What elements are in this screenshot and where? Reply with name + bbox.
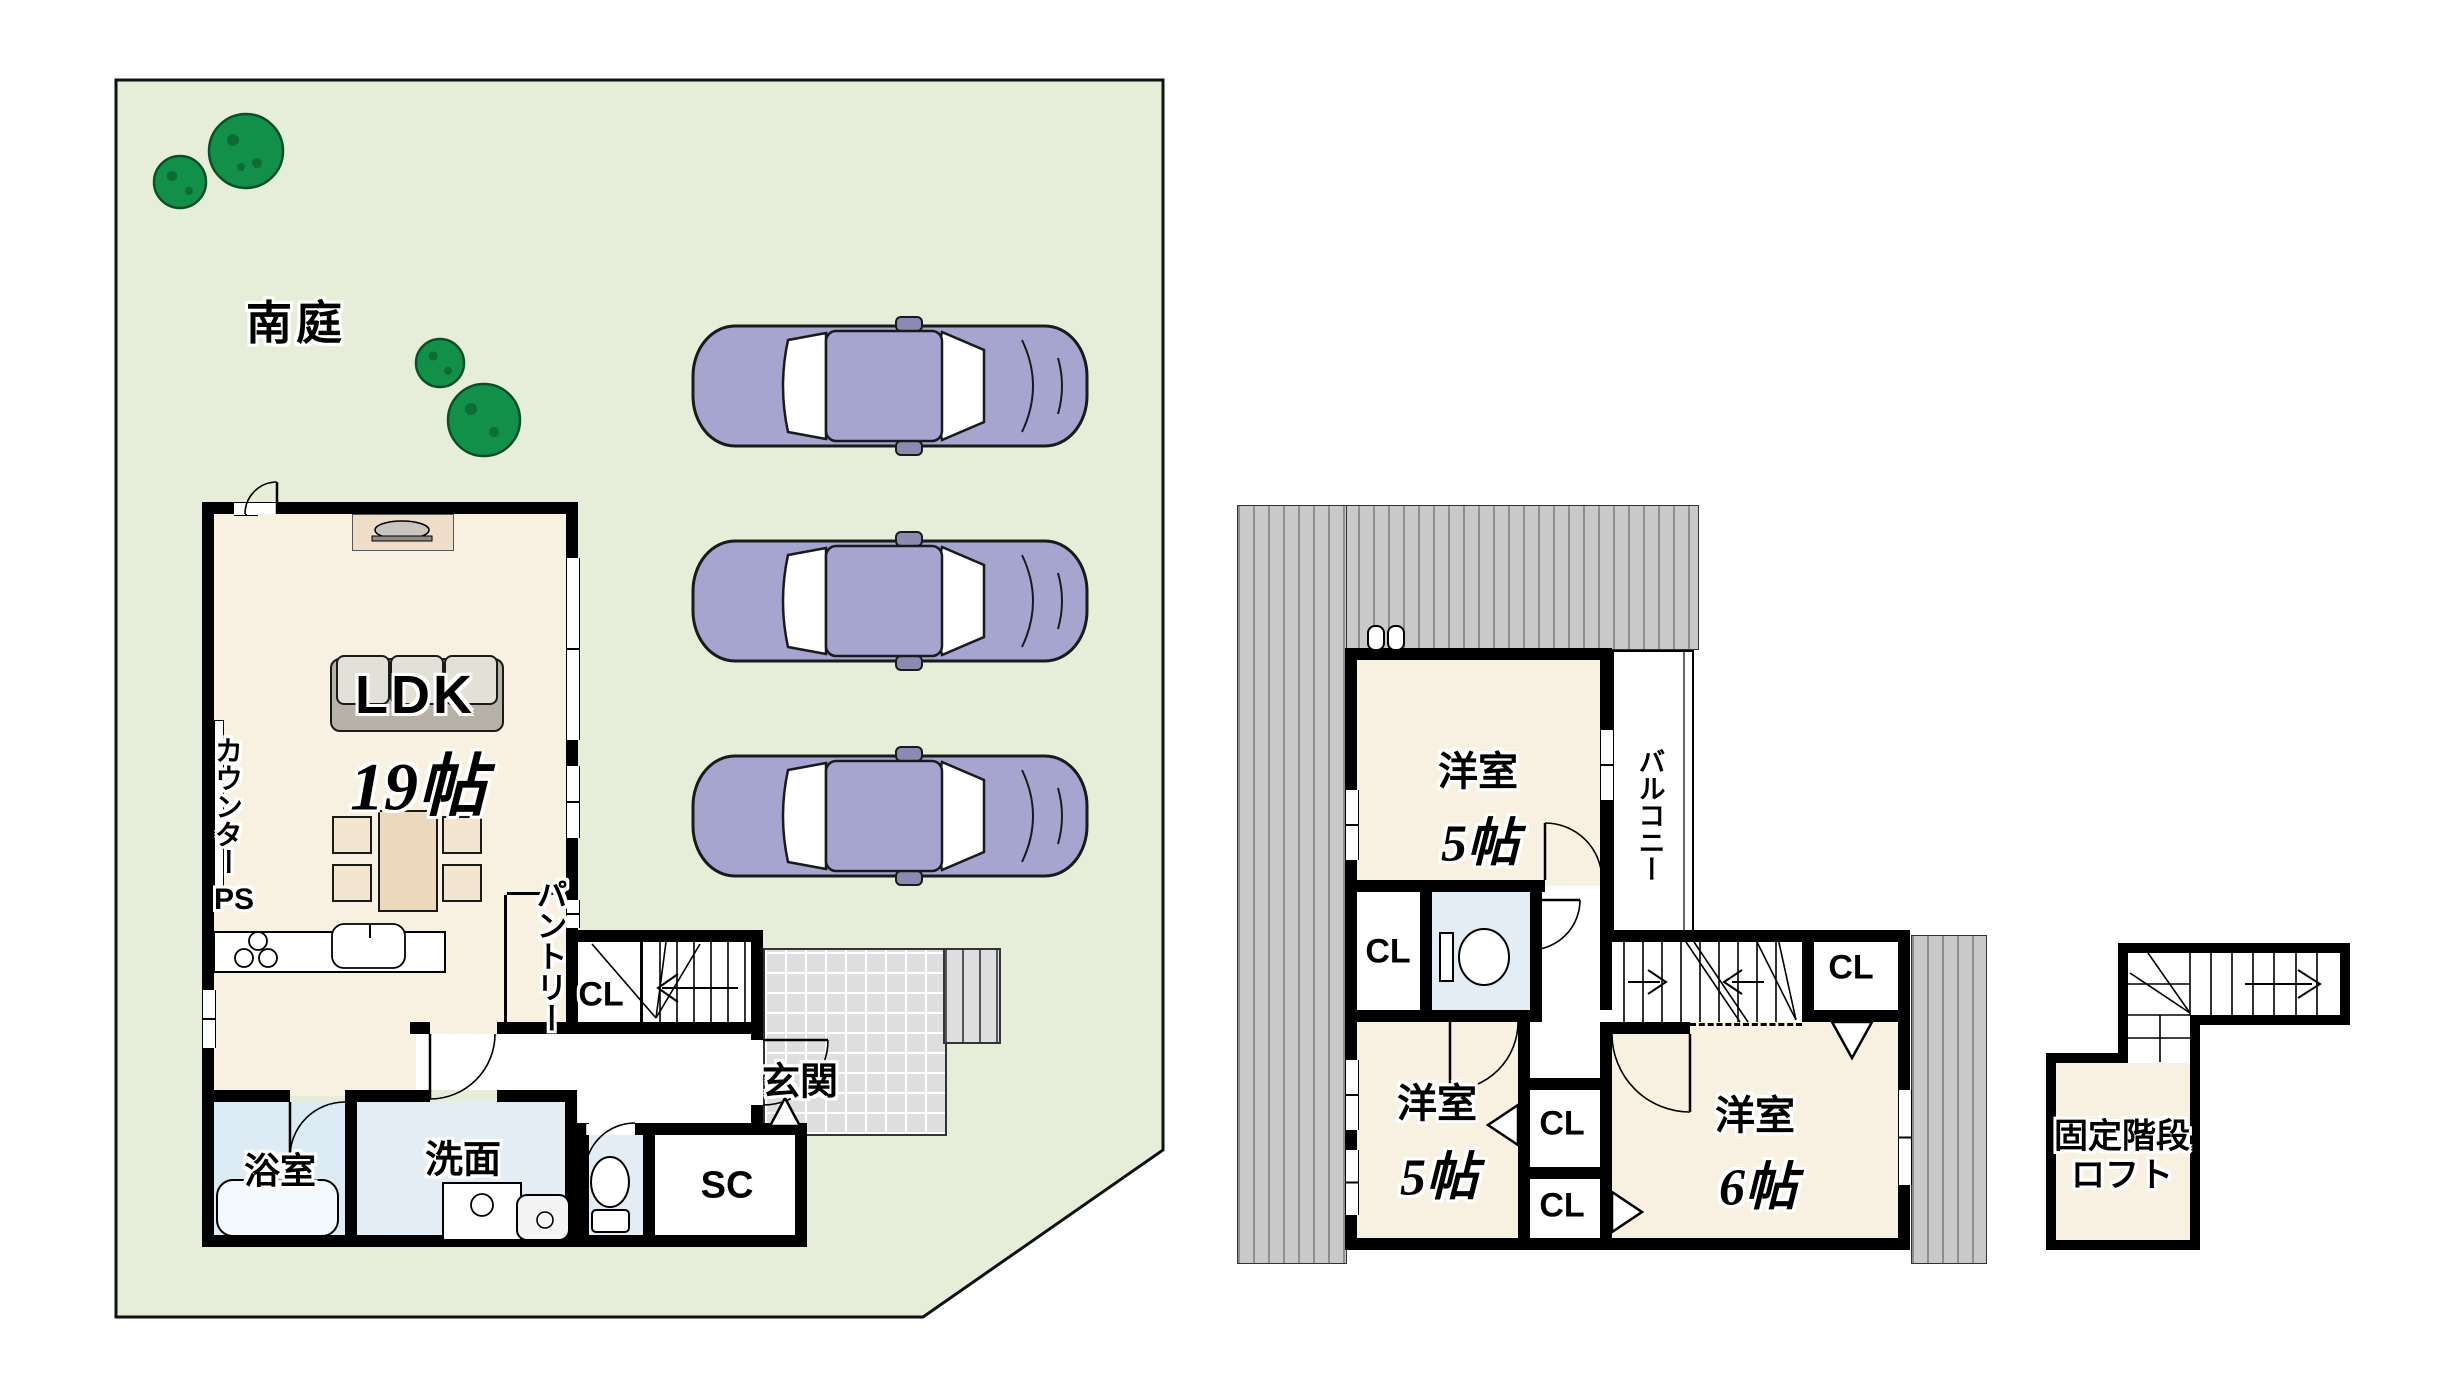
- tree-icon: [448, 384, 520, 456]
- entrance-label: 玄関: [762, 1051, 838, 1106]
- closet-1f-label: CL: [578, 976, 623, 1015]
- wall: [1602, 880, 1612, 892]
- wall: [2200, 1015, 2350, 1025]
- wall: [202, 1090, 290, 1102]
- shoe-closet-label: SC: [701, 1165, 754, 1208]
- wall: [345, 1090, 430, 1102]
- loft-stair-floor2: [2128, 1015, 2190, 1062]
- window: [1345, 1150, 1359, 1215]
- wall: [1420, 892, 1432, 1010]
- kitchen-floor: [208, 1034, 416, 1096]
- car-icon: [693, 532, 1087, 670]
- room2f-left-size: 5帖: [1400, 1135, 1478, 1210]
- bath-label: 浴室: [244, 1142, 316, 1194]
- closet-low-label: CL: [1539, 1187, 1584, 1226]
- door-gap: [245, 503, 277, 514]
- ps-label: PS: [214, 883, 254, 917]
- wall: [410, 1022, 430, 1034]
- chair: [332, 864, 372, 902]
- wall: [1802, 942, 1814, 1010]
- tree-icon: [209, 114, 283, 188]
- wall: [1600, 1022, 1612, 1238]
- toilet2f-floor: [1432, 892, 1530, 1010]
- wall: [2190, 1015, 2200, 1250]
- tree-icon: [154, 156, 206, 208]
- wall: [577, 1123, 589, 1235]
- roof-eave-left: [1237, 505, 1347, 1264]
- wall: [1345, 648, 1612, 660]
- wall: [1612, 930, 1910, 942]
- room2f-right-label: 洋室: [1715, 1083, 1795, 1141]
- window: [1345, 1060, 1359, 1130]
- landing-dashed-line: [1690, 1023, 1802, 1026]
- wall: [643, 1123, 655, 1235]
- floor-plan-canvas: 南庭 LDK 19帖 カウンター PS パントリー CL 玄関 SC 浴室 洗面…: [0, 0, 2456, 1380]
- window: [566, 766, 580, 838]
- entrance-tile: [763, 948, 947, 1136]
- garden-label: 南庭: [246, 287, 346, 353]
- room2f-left-label: 洋室: [1397, 1071, 1477, 1129]
- wall: [1345, 1238, 1910, 1250]
- ldk-label: LDK: [355, 664, 475, 726]
- hall2f-col-floor: [1530, 1022, 1600, 1078]
- toilet-floor: [589, 1135, 643, 1235]
- counter-label: カウンター: [207, 736, 247, 876]
- closet-top-label: CL: [1365, 933, 1410, 972]
- wall: [2118, 943, 2128, 1055]
- wall: [1518, 1167, 1612, 1179]
- wall: [1530, 892, 1542, 1010]
- closet-stairs-label: CL: [1828, 949, 1873, 988]
- wall: [2118, 943, 2350, 953]
- wall: [345, 1102, 357, 1247]
- room2f-right-size: 6帖: [1719, 1145, 1797, 1220]
- window: [1600, 730, 1614, 800]
- washroom-label: 洗面: [425, 1129, 501, 1184]
- wall: [2046, 1240, 2200, 1250]
- wall: [2046, 1053, 2128, 1063]
- loft-stair-floor: [2128, 953, 2340, 1015]
- window: [1898, 1090, 1912, 1185]
- room2f-top-label: 洋室: [1438, 739, 1518, 797]
- window: [1345, 790, 1359, 860]
- wall: [1345, 1010, 1542, 1022]
- wall: [202, 1235, 807, 1247]
- pantry-label: パントリー: [527, 879, 572, 1034]
- hall2f-floor: [1542, 892, 1600, 1010]
- niche: [352, 514, 454, 551]
- door-gap: [585, 1124, 635, 1135]
- stair-closet-partition: [640, 942, 643, 1022]
- entrance-steps: [943, 948, 1001, 1044]
- tree-icon: [416, 339, 464, 387]
- window: [566, 558, 580, 740]
- car-icon: [693, 747, 1087, 885]
- room2f-left-floor: [1351, 1016, 1524, 1244]
- hall-floor: [416, 1034, 578, 1090]
- car-icon: [693, 317, 1087, 455]
- window: [202, 990, 216, 1048]
- chair: [442, 864, 482, 902]
- stairhall-floor: [578, 942, 751, 1134]
- ldk-size-label: 19帖: [350, 731, 486, 830]
- pantry-partition: [504, 895, 507, 1022]
- wall: [566, 930, 763, 942]
- balcony-label: バルコニー: [1631, 748, 1670, 883]
- wall: [1612, 1022, 1690, 1034]
- wall: [578, 1022, 763, 1034]
- wall: [2340, 943, 2350, 1025]
- roof-eave-right: [1911, 935, 1987, 1264]
- wall: [1518, 1078, 1612, 1090]
- wall: [565, 1090, 577, 1235]
- wall: [1518, 1022, 1530, 1238]
- loft-label-line2: ロフト: [2071, 1148, 2173, 1197]
- stairs2f-floor: [1612, 942, 1798, 1022]
- wall: [1357, 880, 1545, 892]
- wall: [635, 1123, 807, 1135]
- wall: [1802, 1010, 1910, 1022]
- wall: [1600, 650, 1612, 1010]
- wall: [795, 1123, 807, 1247]
- closet-mid-label: CL: [1539, 1105, 1584, 1144]
- room2f-top-size: 5帖: [1441, 801, 1519, 876]
